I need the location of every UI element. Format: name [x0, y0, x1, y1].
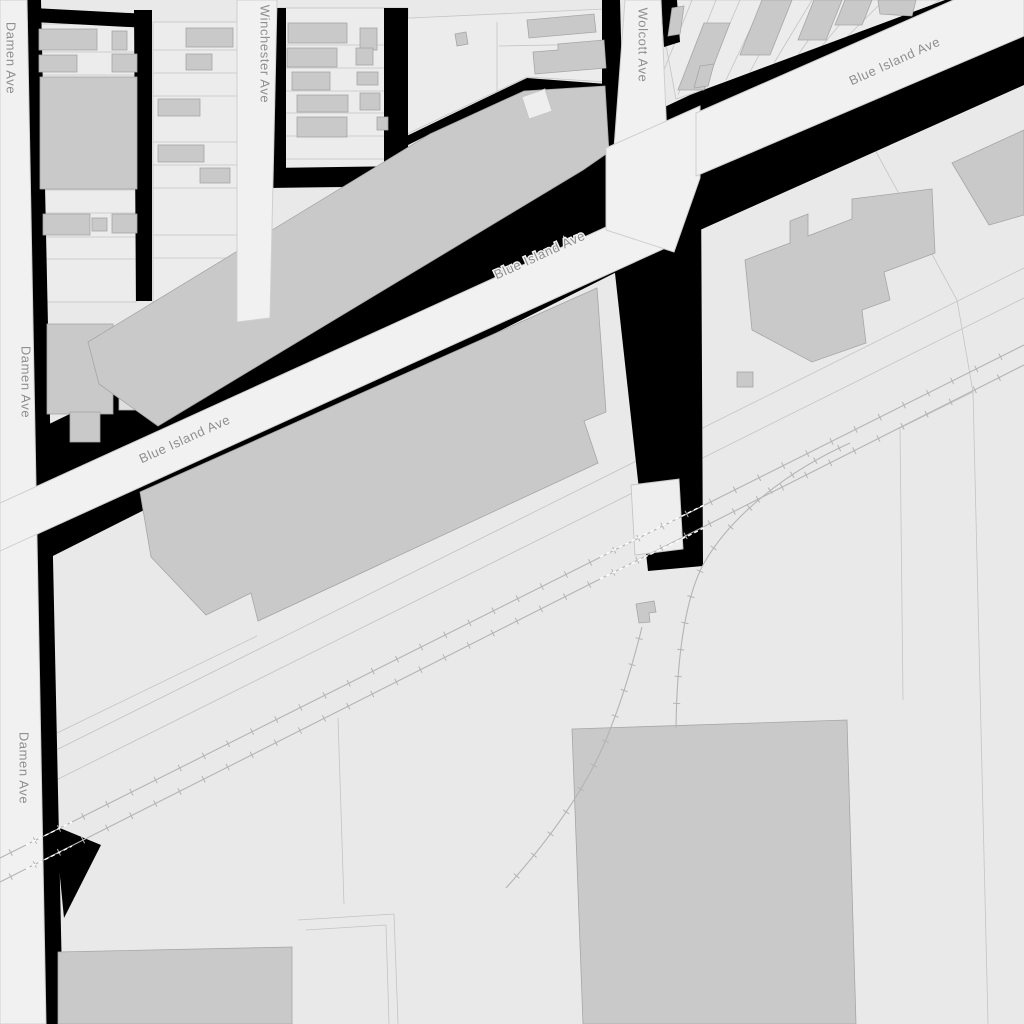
street-label-damen-top: Damen Ave [4, 22, 19, 94]
street-label-wolcott: Wolcott Ave [636, 8, 651, 83]
street-label-damen-mid: Damen Ave [19, 346, 34, 418]
notched-building [745, 189, 935, 362]
white-building [631, 479, 683, 555]
street-label-winchester: Winchester Ave [258, 5, 273, 103]
building-layer [39, 0, 1024, 1024]
street-label-damen-bottom: Damen Ave [17, 732, 32, 804]
map-canvas[interactable]: Damen Ave Damen Ave Damen Ave Winchester… [0, 0, 1024, 1024]
large-building-bottom [572, 720, 856, 1024]
